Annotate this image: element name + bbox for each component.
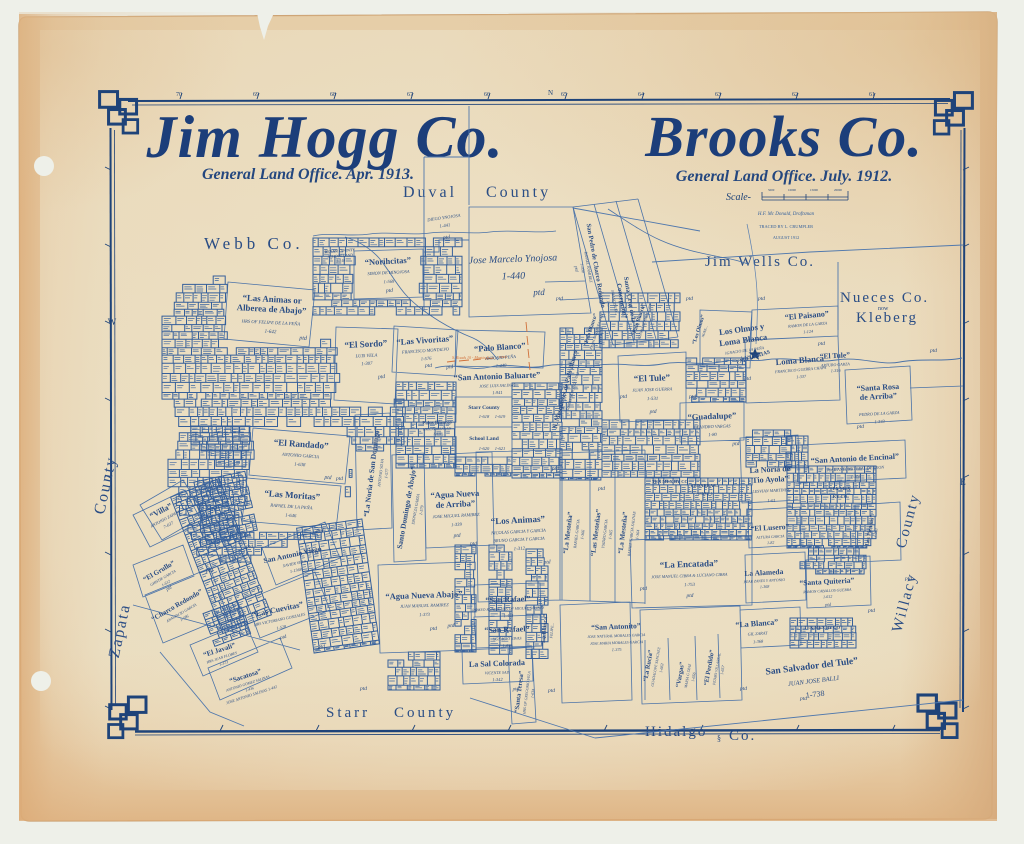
svg-text:1-753: 1-753 — [684, 582, 696, 587]
svg-text:ptd: ptd — [739, 686, 747, 692]
svg-text:1-448: 1-448 — [496, 363, 508, 369]
svg-text:10000: 10000 — [788, 188, 796, 192]
svg-text:ptd: ptd — [731, 441, 739, 447]
svg-text:1-621: 1-621 — [495, 446, 506, 451]
svg-text:Kleberg: Kleberg — [856, 310, 918, 326]
svg-text:64: 64 — [638, 92, 644, 98]
svg-text:65: 65 — [561, 92, 567, 98]
svg-text:62: 62 — [792, 92, 798, 98]
svg-text:1-619: 1-619 — [495, 414, 506, 419]
svg-text:1-124: 1-124 — [803, 329, 813, 335]
svg-text:CEDARRAS...: CEDARRAS... — [691, 483, 719, 488]
svg-text:1-531: 1-531 — [647, 397, 658, 402]
svg-text:TEX MEX: TEX MEX — [830, 486, 852, 491]
svg-text:VICENTE SAIS: VICENTE SAIS — [485, 670, 510, 676]
svg-text:ptd: ptd — [743, 376, 751, 382]
svg-text:Co.: Co. — [729, 728, 756, 744]
svg-text:ptd: ptd — [685, 296, 693, 302]
svg-text:ptd: ptd — [317, 644, 325, 650]
svg-text:“San Rafael”: “San Rafael” — [485, 594, 530, 605]
svg-text:1-638: 1-638 — [294, 463, 306, 469]
svg-text:1-312: 1-312 — [514, 547, 526, 553]
svg-text:1-61: 1-61 — [767, 498, 775, 503]
svg-text:Starr County: Starr County — [468, 405, 499, 411]
svg-text:“San Antonito”: “San Antonito” — [591, 621, 641, 632]
svg-text:1-646: 1-646 — [285, 514, 297, 520]
svg-text:1-339: 1-339 — [451, 522, 463, 528]
svg-text:1-642: 1-642 — [264, 330, 276, 336]
svg-text:General Land Office. Apr. 1913: General Land Office. Apr. 1913. — [202, 166, 414, 183]
svg-text:Starr: Starr — [326, 705, 370, 721]
svg-text:1-373: 1-373 — [419, 612, 431, 617]
svg-text:1-306: 1-306 — [851, 474, 862, 480]
svg-text:1-342: 1-342 — [492, 677, 503, 682]
svg-text:1-307: 1-307 — [361, 362, 373, 368]
svg-text:ptd: ptd — [929, 348, 937, 354]
svg-text:ptd: ptd — [469, 541, 477, 547]
svg-text:ptd: ptd — [315, 528, 324, 535]
svg-text:ptd: ptd — [824, 602, 832, 607]
svg-text:KY CO: KY CO — [833, 494, 848, 499]
svg-text:“El Tule”: “El Tule” — [634, 372, 671, 383]
svg-text:ptd: ptd — [856, 424, 864, 430]
svg-text:“San Rafael”: “San Rafael” — [484, 624, 529, 635]
svg-text:E: E — [960, 477, 966, 487]
svg-text:Brooks Co.: Brooks Co. — [644, 104, 923, 169]
svg-text:YGNACIO RIVAS: YGNACIO RIVAS — [493, 636, 522, 642]
svg-text:ptd: ptd — [597, 486, 605, 492]
svg-text:1-618: 1-618 — [479, 414, 490, 419]
svg-text:1-368: 1-368 — [753, 639, 764, 645]
svg-text:15000: 15000 — [810, 188, 818, 192]
svg-text:5000: 5000 — [768, 188, 775, 192]
svg-text:ptd: ptd — [547, 688, 555, 694]
svg-text:ptd: ptd — [385, 288, 394, 294]
svg-text:1-316: 1-316 — [831, 368, 842, 374]
svg-text:S. Roads 10 - Martin S.: S. Roads 10 - Martin S. — [452, 355, 489, 360]
svg-text:ptd: ptd — [377, 374, 386, 380]
svg-text:Jim Wells Co.: Jim Wells Co. — [705, 254, 815, 270]
svg-text:Nueces Co.: Nueces Co. — [840, 290, 929, 306]
svg-text:AUGUST 1912: AUGUST 1912 — [773, 235, 799, 240]
svg-text:H.F. Mc Donald, Draftsman: H.F. Mc Donald, Draftsman — [757, 212, 815, 217]
svg-text:1-611: 1-611 — [433, 432, 442, 436]
svg-text:General Land Office. July. 191: General Land Office. July. 1912. — [676, 168, 892, 185]
svg-text:ptd: ptd — [245, 544, 253, 550]
svg-text:ptd: ptd — [359, 686, 367, 692]
svg-text:1-440: 1-440 — [502, 271, 526, 283]
svg-text:1-569: 1-569 — [383, 279, 395, 285]
svg-text:Duval: Duval — [403, 184, 457, 201]
svg-text:ptd: ptd — [532, 287, 545, 297]
svg-text:ptd: ptd — [688, 394, 696, 400]
svg-text:1-375: 1-375 — [612, 647, 622, 652]
svg-text:1-82: 1-82 — [767, 540, 775, 545]
svg-text:1-453: 1-453 — [503, 613, 513, 618]
svg-text:ptd: ptd — [551, 466, 559, 472]
svg-text:de Arriba”: de Arriba” — [435, 498, 475, 510]
svg-text:ptd: ptd — [446, 623, 454, 629]
svg-text:1-941: 1-941 — [492, 390, 502, 395]
svg-text:ptd: ptd — [867, 608, 875, 614]
svg-text:Tio Ayola”: Tio Ayola” — [752, 474, 789, 485]
svg-text:ptd: ptd — [452, 533, 461, 539]
svg-text:1-620: 1-620 — [479, 446, 490, 451]
svg-text:ptd: ptd — [904, 576, 912, 582]
svg-text:“La Encatada”: “La Encatada” — [660, 558, 719, 570]
svg-text:W: W — [108, 317, 117, 327]
svg-text:ptd: ptd — [442, 234, 451, 241]
svg-text:ptd: ptd — [429, 626, 437, 632]
svg-text:ptd: ptd — [205, 568, 213, 574]
svg-text:68: 68 — [330, 92, 336, 98]
svg-text:TEX MEX RY CO: TEX MEX RY CO — [652, 479, 689, 484]
svg-text:1-612: 1-612 — [823, 594, 833, 599]
svg-text:ptd: ptd — [424, 363, 432, 369]
svg-text:ptd: ptd — [445, 364, 454, 371]
svg-text:ptd: ptd — [335, 476, 343, 482]
svg-text:1-576: 1-576 — [421, 356, 433, 362]
svg-text:1-368: 1-368 — [760, 584, 770, 589]
svg-text:1-337: 1-337 — [796, 373, 807, 379]
svg-text:1-348: 1-348 — [336, 259, 345, 264]
svg-text:ptd: ptd — [799, 696, 807, 702]
svg-text:ptd: ptd — [817, 341, 825, 347]
svg-text:ptd: ptd — [685, 593, 693, 599]
svg-text:63: 63 — [715, 92, 721, 98]
svg-text:Palos Blancos: Palos Blancos — [422, 420, 452, 426]
svg-text:ptd: ptd — [298, 335, 308, 341]
svg-text:Webb Co.: Webb Co. — [204, 234, 304, 253]
svg-text:20000: 20000 — [834, 188, 842, 192]
svg-text:Scale-: Scale- — [726, 192, 751, 203]
svg-text:§: § — [717, 734, 721, 743]
svg-text:ANNEX 1.: ANNEX 1. — [696, 491, 714, 496]
svg-text:“El Tule”: “El Tule” — [820, 350, 851, 361]
svg-text:County: County — [394, 705, 456, 721]
svg-text:70: 70 — [176, 92, 182, 98]
svg-text:ptd: ptd — [639, 586, 647, 592]
svg-text:61: 61 — [869, 92, 875, 98]
svg-text:1-633: 1-633 — [502, 643, 512, 648]
svg-text:1-343: 1-343 — [874, 419, 885, 425]
svg-text:ptd: ptd — [555, 296, 563, 302]
svg-text:ptd: ptd — [542, 559, 551, 565]
svg-text:TRACED BY L. CRUMPLER: TRACED BY L. CRUMPLER — [759, 224, 813, 229]
svg-text:ptd: ptd — [757, 296, 765, 302]
svg-text:Jim Hogg Co.: Jim Hogg Co. — [145, 104, 503, 170]
svg-text:ptd: ptd — [648, 409, 656, 415]
svg-text:“Guadalupe”: “Guadalupe” — [687, 410, 736, 422]
svg-text:66: 66 — [484, 92, 490, 98]
svg-text:TEX MEX RY CO: TEX MEX RY CO — [804, 625, 841, 630]
svg-text:School Land: School Land — [469, 436, 499, 442]
svg-text:1-80: 1-80 — [708, 432, 717, 437]
svg-text:69: 69 — [253, 92, 259, 98]
svg-text:N: N — [548, 89, 553, 97]
svg-text:67: 67 — [407, 92, 413, 98]
svg-text:County: County — [486, 184, 551, 201]
svg-text:ptd: ptd — [619, 394, 627, 400]
svg-text:ptd: ptd — [323, 475, 332, 482]
